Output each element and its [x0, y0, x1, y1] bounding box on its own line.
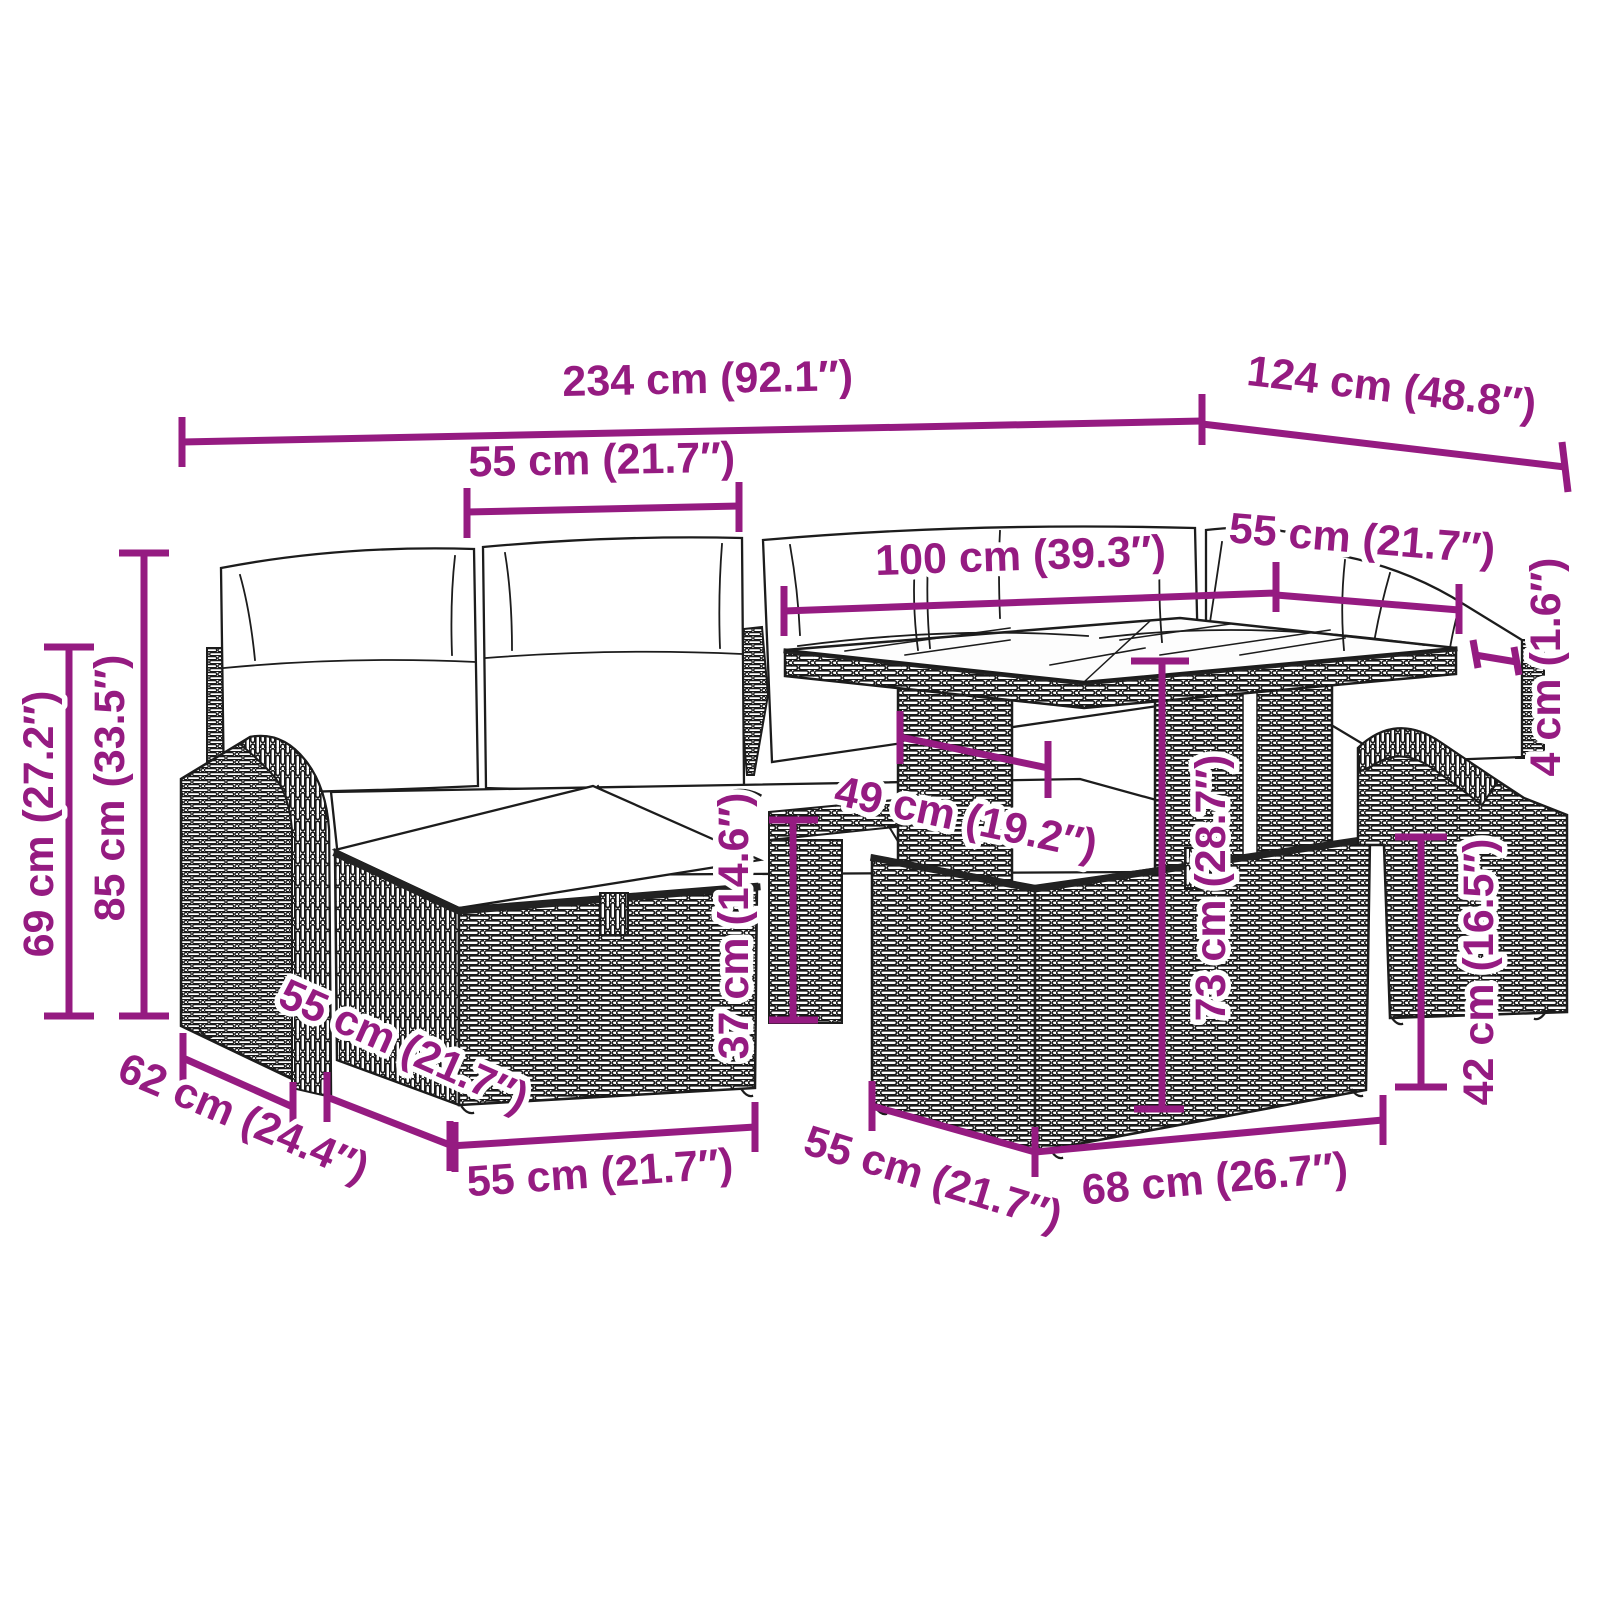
svg-text:4 cm (1.6″): 4 cm (1.6″) [1522, 558, 1570, 777]
svg-text:73 cm (28.7″): 73 cm (28.7″) [1187, 755, 1235, 1022]
svg-text:55 cm (21.7″): 55 cm (21.7″) [468, 434, 736, 487]
svg-text:37 cm (14.6″): 37 cm (14.6″) [710, 793, 758, 1060]
svg-text:85 cm (33.5″): 85 cm (33.5″) [86, 655, 134, 922]
svg-text:42 cm (16.5″): 42 cm (16.5″) [1455, 839, 1503, 1106]
svg-text:69 cm (27.2″): 69 cm (27.2″) [15, 691, 63, 958]
svg-text:100 cm (39.3″): 100 cm (39.3″) [874, 527, 1166, 585]
svg-text:234 cm (92.1″): 234 cm (92.1″) [562, 352, 854, 406]
